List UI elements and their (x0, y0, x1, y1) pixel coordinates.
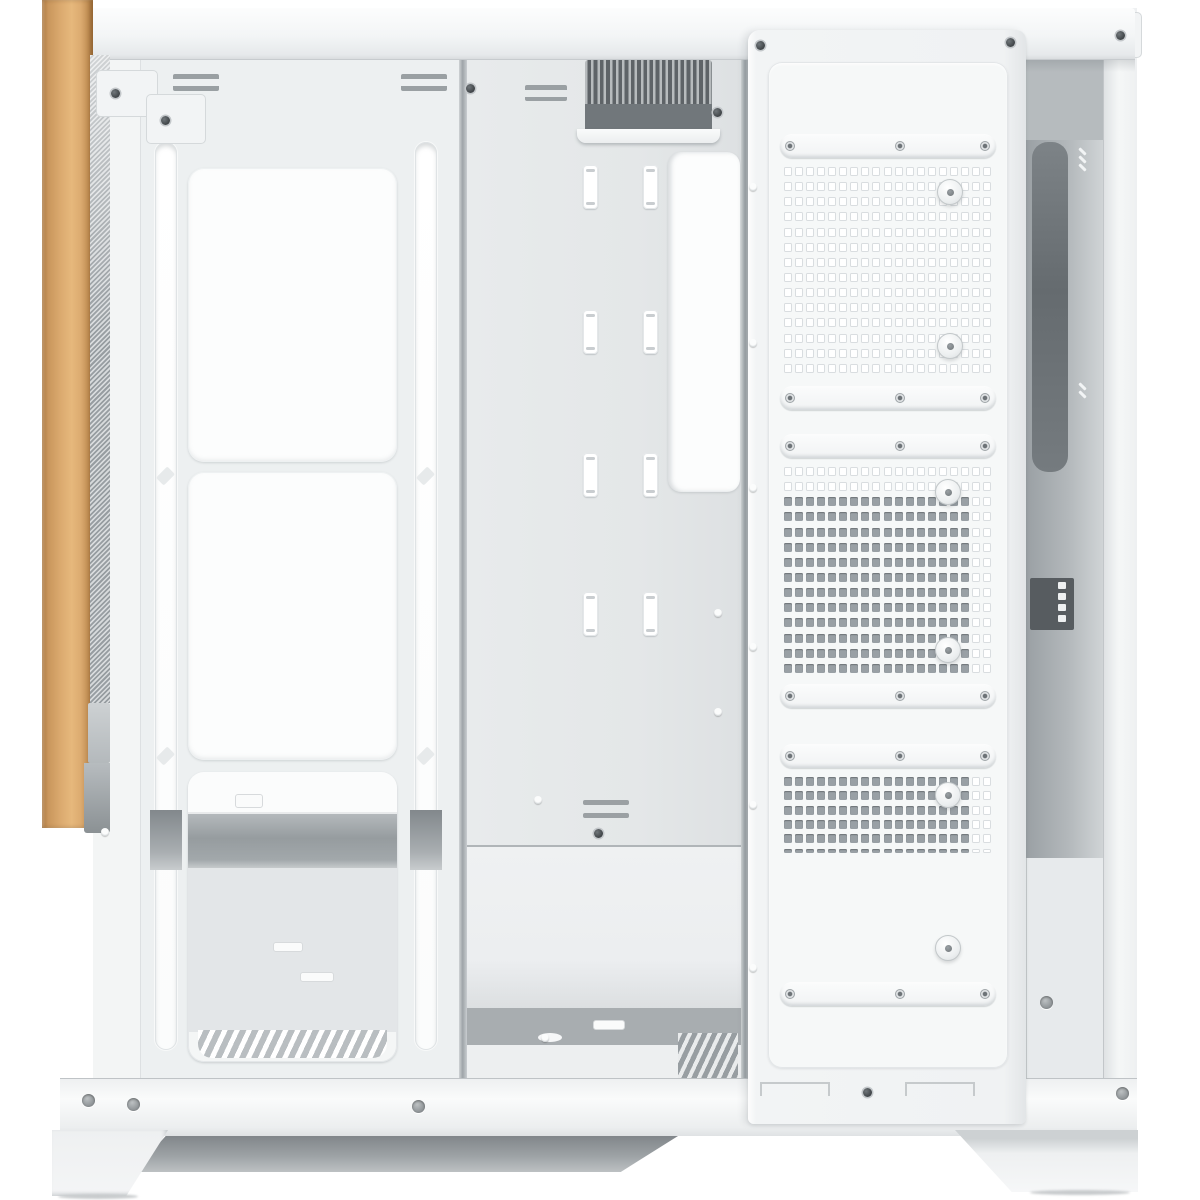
vent-hole (850, 777, 858, 786)
vent-hole (983, 212, 991, 221)
vent-hole (828, 558, 836, 567)
vent-hole (795, 512, 803, 521)
vent-hole (872, 288, 880, 297)
vent-hole (817, 618, 825, 627)
vent-hole (884, 777, 892, 786)
hardware-details-layer (0, 0, 1200, 1200)
vent-hole (906, 318, 914, 327)
vent-hole (972, 849, 980, 853)
vent-hole (850, 349, 858, 358)
vent-hole (817, 349, 825, 358)
vent-hole (961, 497, 969, 506)
vent-hole (884, 543, 892, 552)
vent-hole (795, 467, 803, 476)
vent-hole (828, 258, 836, 267)
vent-hole (961, 467, 969, 476)
vent-hole (906, 467, 914, 476)
vent-hole (961, 664, 969, 673)
vent-hole (884, 482, 892, 491)
vent-hole (961, 288, 969, 297)
screw (785, 393, 795, 403)
vent-hole (817, 212, 825, 221)
screw (594, 829, 603, 838)
vent-hole (884, 303, 892, 312)
vent-hole (906, 849, 914, 853)
vent-hole (806, 197, 814, 206)
thumbscrew (937, 179, 963, 205)
vent-hole (839, 618, 847, 627)
vent-hole (795, 497, 803, 506)
vent-hole (795, 167, 803, 176)
vent-hole (861, 603, 869, 612)
vent-hole (895, 558, 903, 567)
vent-hole (784, 182, 792, 191)
vent-hole (839, 258, 847, 267)
vent-hole (983, 528, 991, 537)
vent-hole (906, 182, 914, 191)
screw (1116, 31, 1125, 40)
cable-routing-slot (643, 453, 658, 497)
vent-hole (861, 558, 869, 567)
vent-hole (795, 664, 803, 673)
vent-hole (784, 243, 792, 252)
vent-hole (795, 197, 803, 206)
vent-hole (839, 543, 847, 552)
vent-hole (850, 243, 858, 252)
vent-hole (861, 212, 869, 221)
vent-hole (828, 618, 836, 627)
vent-hole (850, 303, 858, 312)
vent-hole (950, 664, 958, 673)
vent-hole (795, 820, 803, 829)
screw (466, 84, 475, 93)
vent-hole (839, 303, 847, 312)
cable-routing-slot (643, 310, 658, 354)
vent-hole (795, 649, 803, 658)
vent-hole (850, 806, 858, 815)
vent-hole (950, 543, 958, 552)
vent-hole (961, 197, 969, 206)
vent-hole (872, 528, 880, 537)
vent-hole (917, 497, 925, 506)
vent-hole (817, 849, 825, 853)
vent-hole (817, 558, 825, 567)
vent-hole (850, 212, 858, 221)
screw (749, 643, 757, 651)
vent-hole (939, 820, 947, 829)
vent-hole (950, 364, 958, 373)
vent-hole (784, 634, 792, 643)
vent-hole (828, 182, 836, 191)
vent-hole (795, 482, 803, 491)
vent-hole (939, 849, 947, 853)
vent-hole (839, 318, 847, 327)
vent-hole (839, 528, 847, 537)
vent-hole (861, 664, 869, 673)
vent-hole (983, 303, 991, 312)
vent-hole (917, 649, 925, 658)
vent-hole (961, 167, 969, 176)
vent-hole (850, 197, 858, 206)
vent-hole (828, 497, 836, 506)
vent-hole (983, 334, 991, 343)
vent-hole (917, 618, 925, 627)
vent-hole (972, 182, 980, 191)
vent-hole (839, 664, 847, 673)
vent-hole (795, 558, 803, 567)
vent-hole (828, 318, 836, 327)
vent-hole (828, 212, 836, 221)
vent-hole (928, 364, 936, 373)
vent-hole (983, 243, 991, 252)
vent-hole (906, 834, 914, 843)
vent-hole (928, 806, 936, 815)
vent-hole (961, 618, 969, 627)
vent-hole (939, 212, 947, 221)
vent-hole (806, 528, 814, 537)
vent-hole (950, 573, 958, 582)
vent-hole (861, 649, 869, 658)
vent-hole (972, 258, 980, 267)
vent-hole (961, 806, 969, 815)
vent-hole (906, 603, 914, 612)
thumbscrew (935, 637, 961, 663)
vent-hole (806, 777, 814, 786)
vent-hole (784, 543, 792, 552)
vent-hole (850, 318, 858, 327)
vent-hole (917, 558, 925, 567)
vent-hole (784, 467, 792, 476)
vent-hole (839, 182, 847, 191)
vent-hole (939, 573, 947, 582)
vent-hole (906, 618, 914, 627)
vent-hole (950, 318, 958, 327)
screw (785, 141, 795, 151)
vent-hole (906, 512, 914, 521)
vent-hole (939, 243, 947, 252)
vent-hole (795, 182, 803, 191)
screw (895, 691, 905, 701)
vent-hole (839, 849, 847, 853)
vent-hole (972, 512, 980, 521)
vent-hole (861, 588, 869, 597)
vent-hole (850, 167, 858, 176)
vent-hole (861, 167, 869, 176)
vent-hole (895, 467, 903, 476)
vent-hole (884, 603, 892, 612)
vent-hole (839, 212, 847, 221)
vent-hole (884, 243, 892, 252)
vent-hole (817, 467, 825, 476)
vent-hole (795, 288, 803, 297)
vent-hole (939, 664, 947, 673)
vent-hole (828, 228, 836, 237)
vent-hole (884, 167, 892, 176)
vent-hole (972, 649, 980, 658)
vent-hole (972, 618, 980, 627)
vent-hole (872, 243, 880, 252)
vent-hole (784, 588, 792, 597)
vent-hole (828, 834, 836, 843)
vent-hole (784, 849, 792, 853)
vent-hole (850, 334, 858, 343)
vent-hole (917, 482, 925, 491)
vent-hole (784, 791, 792, 800)
vent-hole (895, 303, 903, 312)
fan-slot-strip (780, 386, 996, 410)
vent-hole (950, 512, 958, 521)
vent-hole (828, 649, 836, 658)
vent-hole (983, 182, 991, 191)
vent-hole (839, 334, 847, 343)
vent-hole (939, 364, 947, 373)
vent-hole (906, 258, 914, 267)
vent-hole (884, 228, 892, 237)
vent-hole (917, 467, 925, 476)
screw (534, 796, 542, 804)
vent-hole (895, 497, 903, 506)
vent-hole (817, 334, 825, 343)
vent-hole (972, 528, 980, 537)
vent-hole (895, 334, 903, 343)
vent-hole (939, 318, 947, 327)
vent-hole (928, 467, 936, 476)
vent-hole (872, 497, 880, 506)
vent-hole (928, 512, 936, 521)
vent-hole (983, 512, 991, 521)
vent-hole (983, 364, 991, 373)
vent-hole (850, 228, 858, 237)
vent-hole (806, 543, 814, 552)
vent-hole (983, 806, 991, 815)
vent-hole (784, 777, 792, 786)
vent-hole (850, 288, 858, 297)
vent-hole (795, 318, 803, 327)
vent-hole (872, 558, 880, 567)
screw (1116, 1087, 1129, 1100)
vent-hole (828, 573, 836, 582)
vent-hole (928, 573, 936, 582)
vent-hole (784, 197, 792, 206)
vent-hole (828, 806, 836, 815)
vent-hole (906, 497, 914, 506)
vent-hole (906, 588, 914, 597)
vent-hole (861, 364, 869, 373)
vent-hole (895, 777, 903, 786)
vent-hole (884, 212, 892, 221)
vent-hole (928, 243, 936, 252)
vent-hole (817, 820, 825, 829)
vent-hole (850, 258, 858, 267)
thumbscrew (935, 782, 961, 808)
screw (127, 1098, 140, 1111)
screw (895, 751, 905, 761)
vent-hole (861, 573, 869, 582)
vent-hole (939, 167, 947, 176)
vent-hole (928, 349, 936, 358)
vent-hole (828, 588, 836, 597)
vent-hole (784, 664, 792, 673)
cable-routing-slot (643, 592, 658, 636)
vent-hole (861, 634, 869, 643)
vent-hole (972, 806, 980, 815)
vent-hole (928, 497, 936, 506)
vent-hole (806, 820, 814, 829)
vent-hole (983, 543, 991, 552)
vent-hole (861, 791, 869, 800)
screw (980, 141, 990, 151)
vent-hole (906, 228, 914, 237)
vent-hole (895, 512, 903, 521)
screw (749, 801, 757, 809)
vent-hole (939, 618, 947, 627)
vent-hole (950, 603, 958, 612)
vent-hole (872, 849, 880, 853)
vent-hole (817, 573, 825, 582)
vent-hole (939, 467, 947, 476)
vent-hole (872, 228, 880, 237)
vent-hole (895, 258, 903, 267)
vent-hole (784, 512, 792, 521)
vent-hole (806, 618, 814, 627)
screw (895, 989, 905, 999)
vent-hole (861, 820, 869, 829)
cable-routing-slot (583, 165, 598, 209)
fan-slot-strip (780, 434, 996, 458)
vent-hole (972, 318, 980, 327)
vent-hole (917, 528, 925, 537)
vent-hole (917, 318, 925, 327)
vent-hole (828, 634, 836, 643)
vent-hole (839, 167, 847, 176)
vent-hole (806, 167, 814, 176)
vent-hole (795, 273, 803, 282)
vent-hole (861, 849, 869, 853)
vent-hole (839, 573, 847, 582)
vent-hole (884, 618, 892, 627)
vent-hole (906, 349, 914, 358)
screw (785, 989, 795, 999)
vent-hole (828, 334, 836, 343)
vent-hole (828, 288, 836, 297)
vent-hole (828, 849, 836, 853)
vent-hole (917, 849, 925, 853)
screw (980, 691, 990, 701)
vent-hole (861, 482, 869, 491)
vent-hole (817, 288, 825, 297)
vent-hole (972, 197, 980, 206)
fan-slot-strip (780, 684, 996, 708)
vent-hole (817, 228, 825, 237)
vent-hole (972, 243, 980, 252)
vent-hole (961, 588, 969, 597)
vent-hole (795, 806, 803, 815)
vent-hole (928, 834, 936, 843)
vent-hole (784, 167, 792, 176)
screw (749, 484, 757, 492)
vent-hole (972, 834, 980, 843)
vent-hole (961, 482, 969, 491)
vent-hole (861, 318, 869, 327)
vent-hole (917, 364, 925, 373)
vent-hole (972, 364, 980, 373)
vent-hole (795, 364, 803, 373)
vent-hole (906, 820, 914, 829)
vent-hole (839, 820, 847, 829)
vent-hole (950, 212, 958, 221)
vent-hole (895, 806, 903, 815)
vent-hole (850, 820, 858, 829)
vent-hole (895, 588, 903, 597)
vent-hole (972, 349, 980, 358)
vent-hole (950, 243, 958, 252)
vent-hole (872, 334, 880, 343)
screw (749, 183, 757, 191)
vent-hole (917, 349, 925, 358)
vent-hole (917, 777, 925, 786)
vent-hole (872, 318, 880, 327)
vent-hole (972, 820, 980, 829)
screw (785, 691, 795, 701)
vent-hole (795, 603, 803, 612)
vent-hole (872, 573, 880, 582)
vent-hole (817, 482, 825, 491)
vent-hole (817, 634, 825, 643)
vent-hole (961, 603, 969, 612)
vent-hole (983, 467, 991, 476)
vent-hole (917, 258, 925, 267)
vent-hole (895, 197, 903, 206)
vent-hole (895, 288, 903, 297)
vent-hole (872, 634, 880, 643)
vent-hole (928, 820, 936, 829)
vent-hole (884, 318, 892, 327)
vent-hole (961, 573, 969, 582)
vent-hole (906, 197, 914, 206)
vent-hole (806, 806, 814, 815)
vent-hole (895, 649, 903, 658)
vent-hole (961, 243, 969, 252)
vent-hole (850, 528, 858, 537)
vent-hole (961, 212, 969, 221)
vent-hole (795, 228, 803, 237)
vent-hole (784, 349, 792, 358)
vent-hole (928, 273, 936, 282)
vent-hole (895, 618, 903, 627)
vent-hole (861, 288, 869, 297)
vent-hole (950, 618, 958, 627)
vent-hole (806, 849, 814, 853)
vent-hole (806, 649, 814, 658)
vent-hole (817, 182, 825, 191)
vent-hole (884, 791, 892, 800)
vent-hole (817, 318, 825, 327)
vent-hole (950, 228, 958, 237)
vent-hole (872, 603, 880, 612)
vent-hole (983, 273, 991, 282)
vent-hole (839, 558, 847, 567)
vent-hole (784, 558, 792, 567)
vent-hole (983, 558, 991, 567)
vent-hole (872, 212, 880, 221)
vent-hole (784, 212, 792, 221)
vent-hole (972, 288, 980, 297)
cable-routing-slot (583, 310, 598, 354)
vent-hole (861, 228, 869, 237)
vent-hole (884, 258, 892, 267)
vent-hole (895, 603, 903, 612)
vent-hole (906, 303, 914, 312)
